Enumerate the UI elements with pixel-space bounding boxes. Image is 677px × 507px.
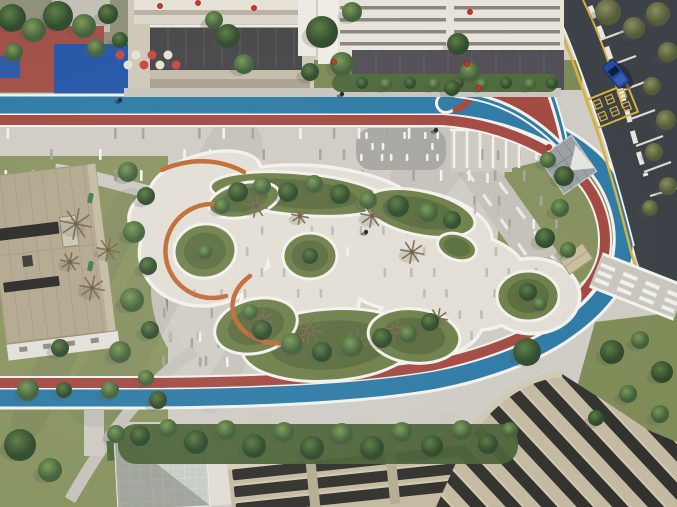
aerial-photo-stage xyxy=(0,0,677,507)
aerial-photo xyxy=(0,0,677,507)
photo-glare-overlay xyxy=(0,0,677,507)
